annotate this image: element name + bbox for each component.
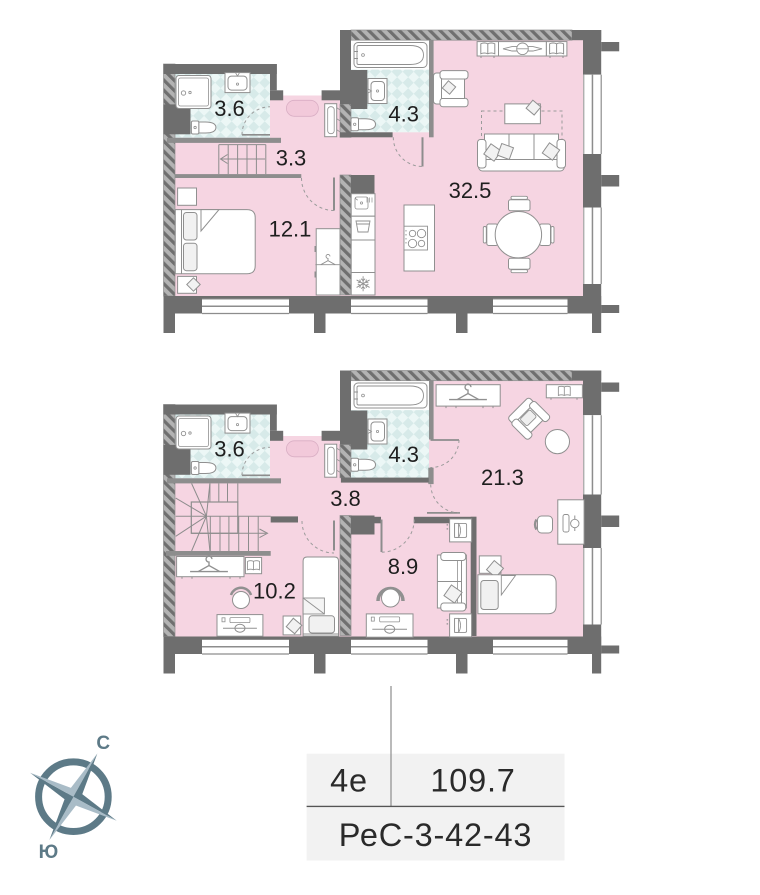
svg-text:РеС-3-42-43: РеС-3-42-43 [339,817,532,853]
svg-text:21.3: 21.3 [481,465,524,490]
svg-text:8.9: 8.9 [388,554,419,579]
svg-text:Ю: Ю [39,842,59,863]
svg-text:4е: 4е [330,763,368,799]
svg-text:3.6: 3.6 [214,96,245,121]
svg-text:3.3: 3.3 [276,146,307,171]
svg-text:3.8: 3.8 [330,486,361,511]
svg-text:32.5: 32.5 [449,178,492,203]
svg-text:4.3: 4.3 [388,442,419,467]
svg-text:С: С [96,733,110,754]
svg-text:10.2: 10.2 [253,579,296,604]
svg-text:4.3: 4.3 [388,102,419,127]
svg-text:109.7: 109.7 [430,763,515,799]
svg-text:3.6: 3.6 [214,437,245,462]
svg-text:12.1: 12.1 [269,217,312,242]
